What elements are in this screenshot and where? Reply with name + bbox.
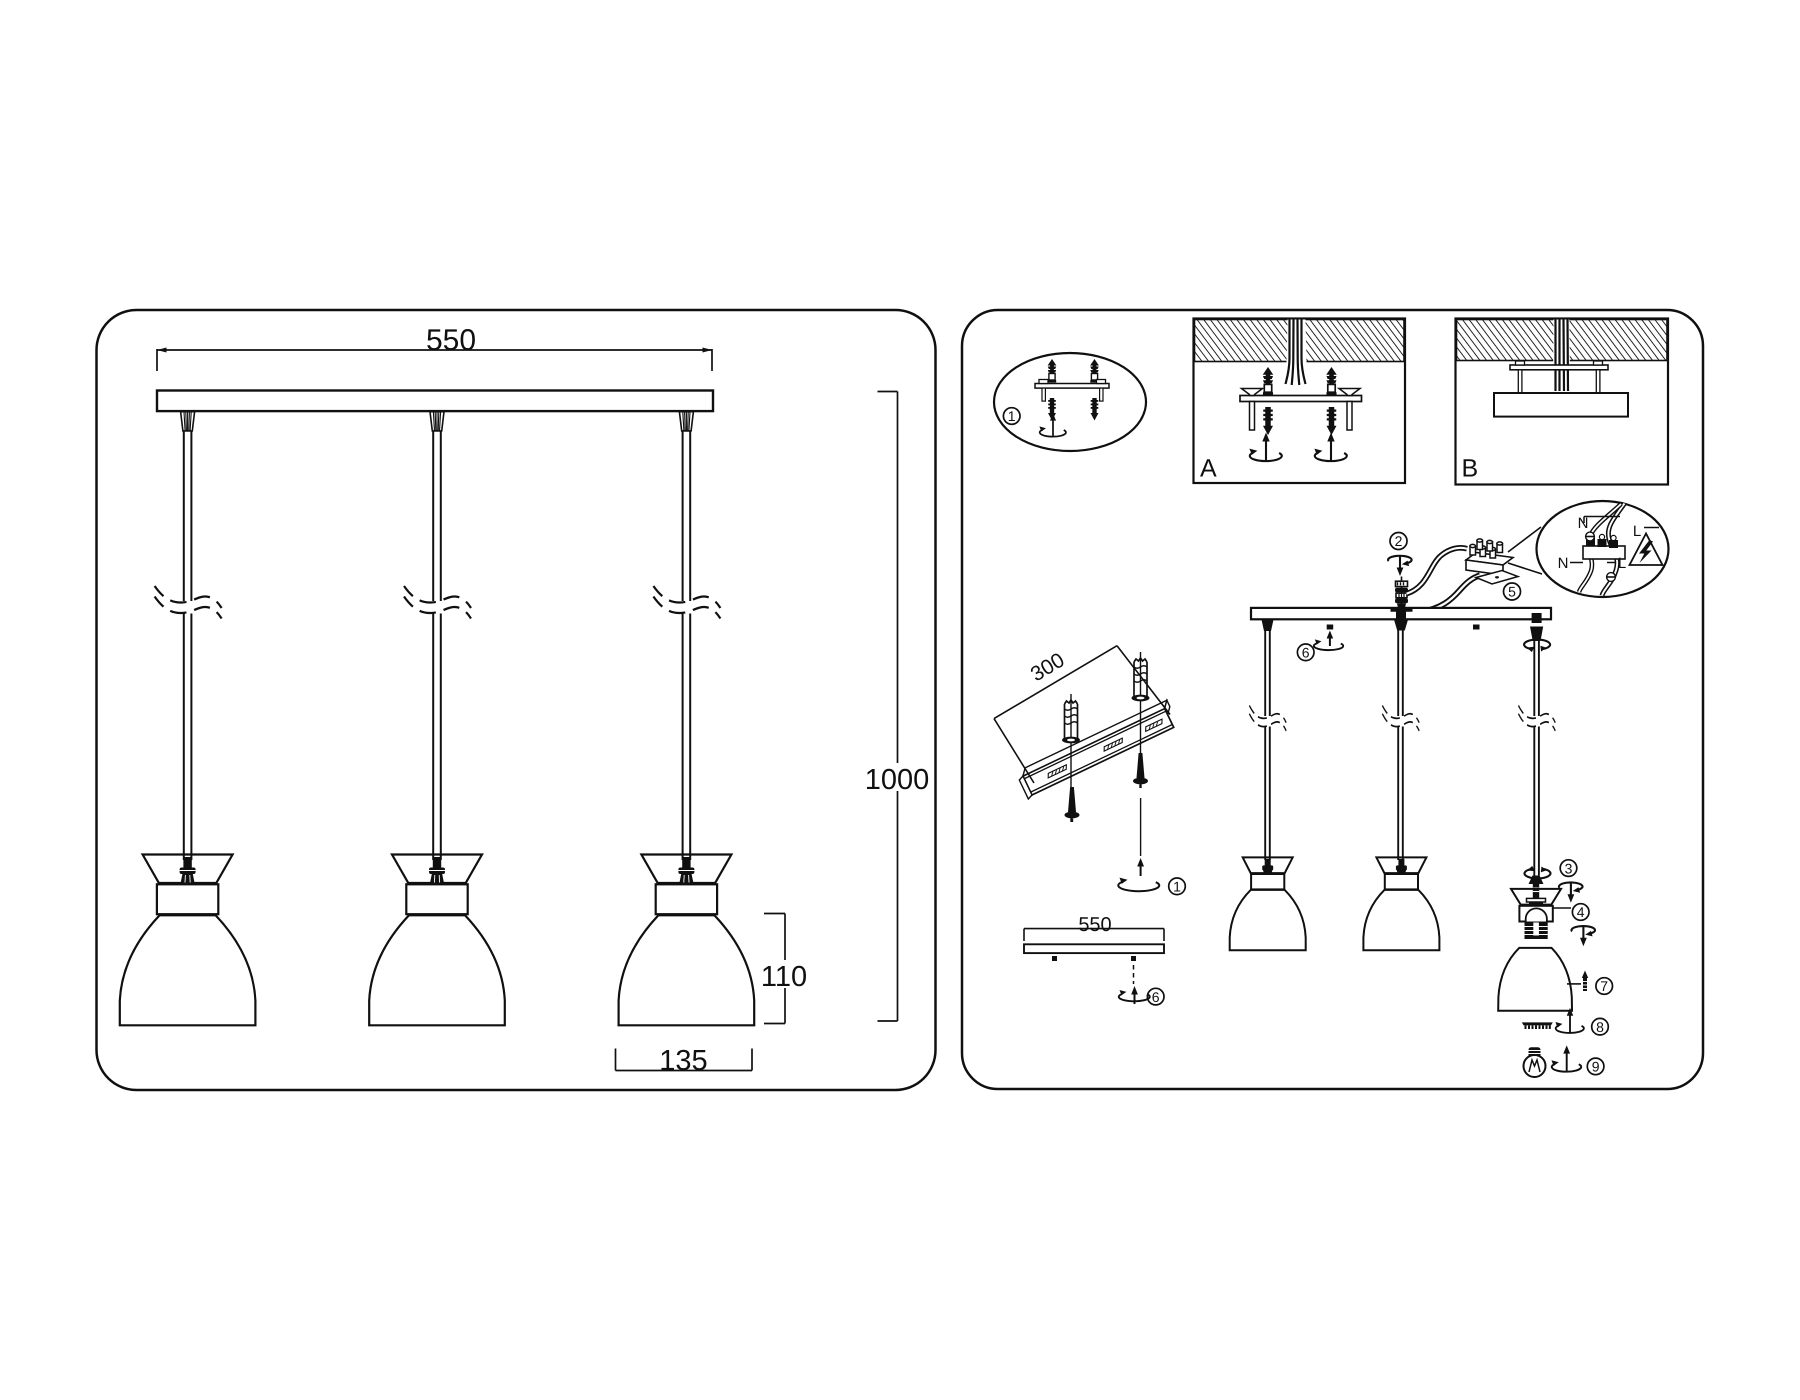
svg-text:A: A: [1200, 455, 1217, 483]
svg-text:135: 135: [659, 1045, 707, 1077]
svg-text:1: 1: [1173, 879, 1181, 895]
svg-text:1: 1: [1008, 408, 1016, 424]
svg-text:7: 7: [1600, 978, 1608, 994]
svg-text:5: 5: [1508, 584, 1516, 600]
svg-text:3: 3: [1565, 860, 1573, 876]
svg-text:110: 110: [761, 961, 807, 993]
svg-text:550: 550: [1078, 914, 1111, 936]
svg-text:6: 6: [1302, 645, 1310, 661]
svg-text:1000: 1000: [865, 764, 930, 796]
svg-text:4: 4: [1577, 904, 1585, 920]
svg-text:550: 550: [426, 324, 476, 357]
svg-text:8: 8: [1596, 1019, 1604, 1035]
svg-text:6: 6: [1152, 989, 1160, 1005]
svg-text:B: B: [1462, 455, 1479, 483]
svg-text:L: L: [1633, 523, 1641, 540]
svg-text:L: L: [1618, 555, 1626, 572]
svg-text:2: 2: [1395, 533, 1403, 549]
svg-text:9: 9: [1592, 1059, 1600, 1075]
svg-text:N: N: [1558, 555, 1569, 572]
svg-text:N: N: [1578, 515, 1589, 532]
